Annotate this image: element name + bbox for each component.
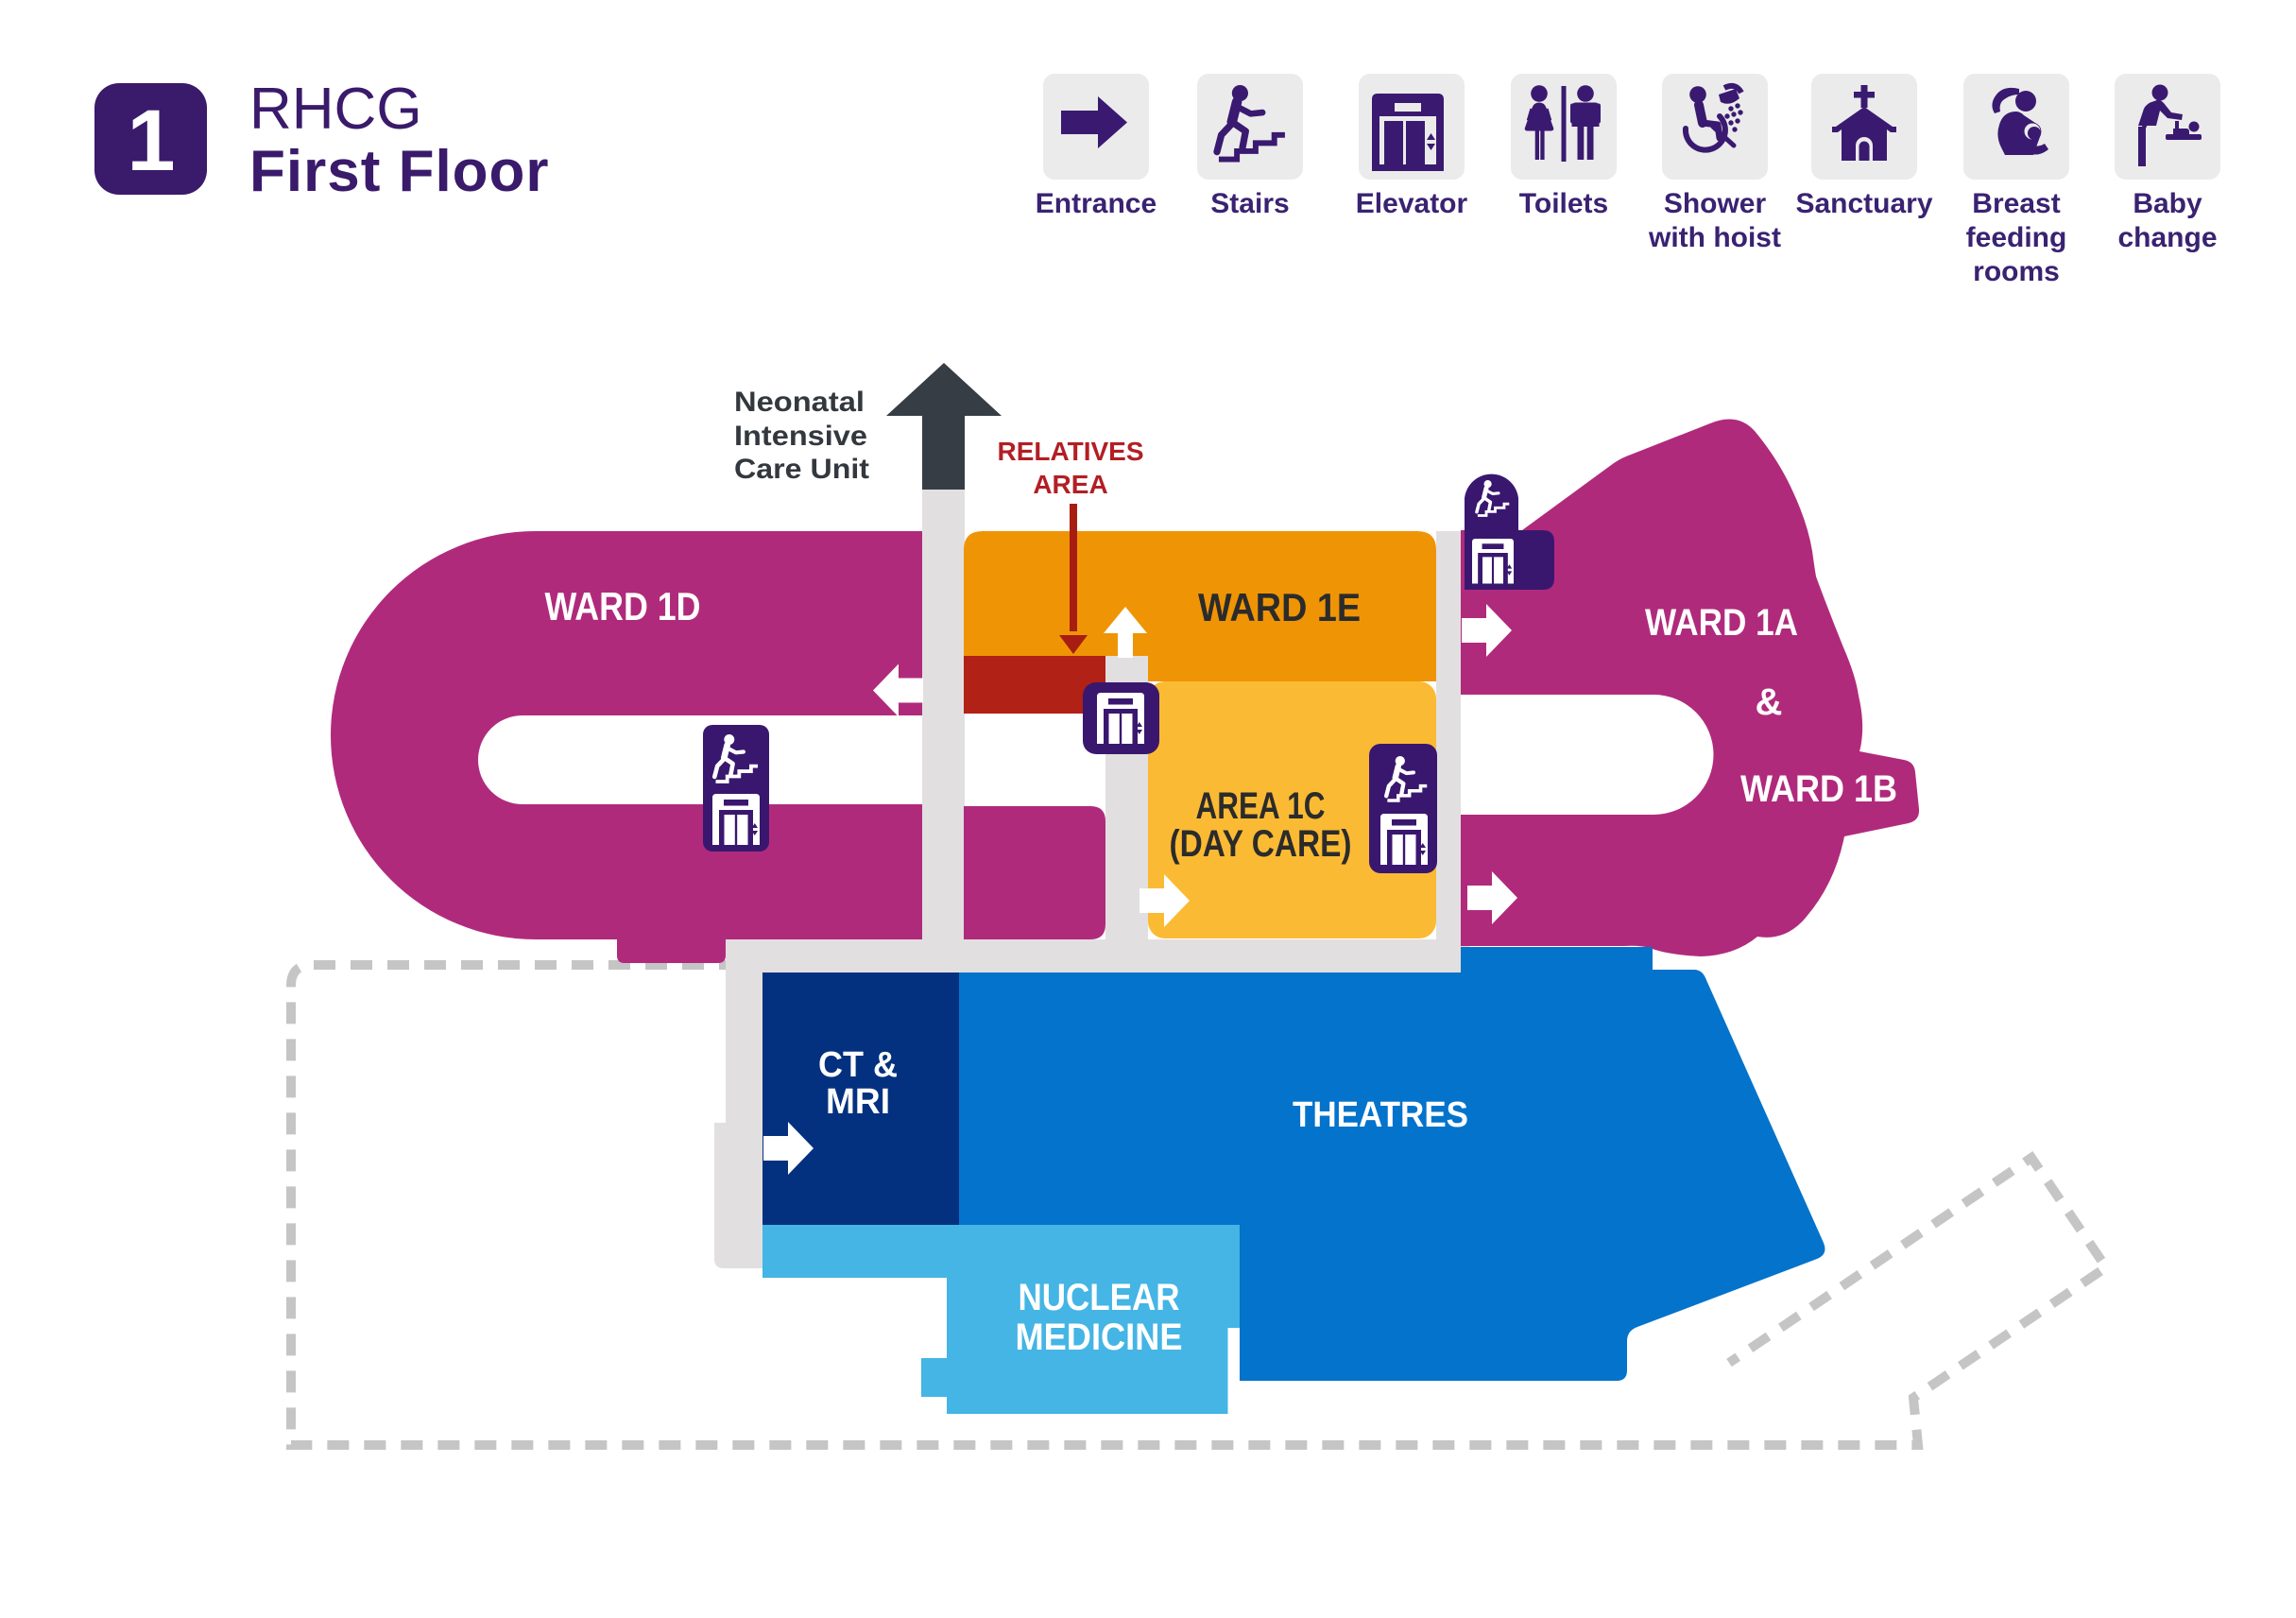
svg-text:Care Unit: Care Unit [734, 454, 869, 485]
svg-text:WARD 1D: WARD 1D [545, 584, 701, 628]
svg-text:with hoist: with hoist [1648, 222, 1781, 253]
svg-text:WARD 1A: WARD 1A [1645, 602, 1798, 644]
svg-text:Intensive: Intensive [734, 421, 867, 452]
svg-text:THEATRES: THEATRES [1293, 1095, 1468, 1135]
svg-text:Neonatal: Neonatal [734, 387, 865, 418]
svg-text:Elevator: Elevator [1356, 188, 1468, 219]
svg-text:Shower: Shower [1664, 188, 1767, 219]
svg-text:MEDICINE: MEDICINE [1016, 1317, 1183, 1358]
svg-text:AREA 1C: AREA 1C [1196, 785, 1326, 827]
svg-text:1: 1 [127, 93, 175, 189]
svg-text:Stairs: Stairs [1210, 188, 1289, 219]
svg-text:(DAY CARE): (DAY CARE) [1170, 823, 1352, 865]
svg-text:Entrance: Entrance [1036, 188, 1157, 219]
svg-text:Breast: Breast [1972, 188, 2060, 219]
svg-text:rooms: rooms [1973, 256, 2060, 287]
svg-text:NUCLEAR: NUCLEAR [1019, 1277, 1180, 1318]
svg-text:CT &: CT & [818, 1045, 898, 1085]
svg-text:First Floor: First Floor [249, 139, 550, 204]
svg-text:feeding: feeding [1966, 222, 2067, 253]
svg-text:Sanctuary: Sanctuary [1795, 188, 1932, 219]
svg-text:Baby: Baby [2133, 188, 2202, 219]
svg-text:RELATIVES: RELATIVES [997, 437, 1143, 466]
svg-text:RHCG: RHCG [249, 77, 422, 142]
svg-text:&: & [1756, 681, 1783, 723]
svg-text:Toilets: Toilets [1519, 188, 1608, 219]
svg-text:WARD 1E: WARD 1E [1198, 585, 1361, 629]
svg-text:WARD 1B: WARD 1B [1740, 768, 1897, 810]
svg-text:AREA: AREA [1033, 470, 1107, 499]
svg-text:MRI: MRI [826, 1082, 890, 1122]
svg-text:change: change [2117, 222, 2217, 253]
